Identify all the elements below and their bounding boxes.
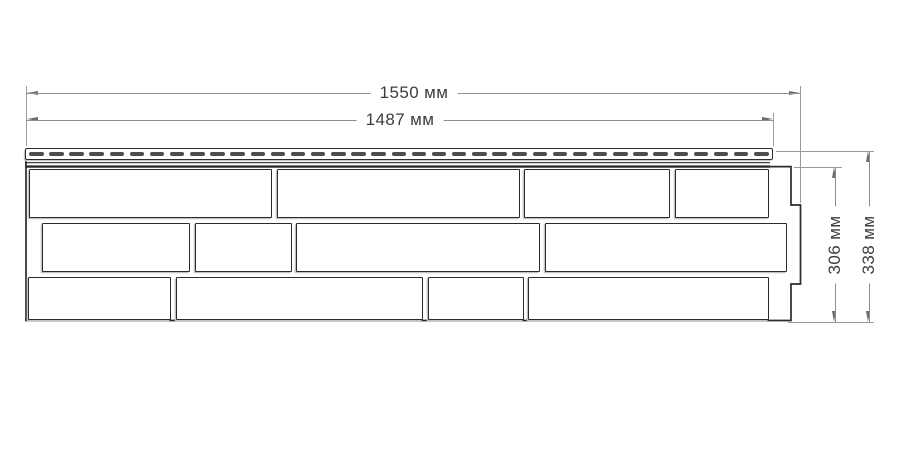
nail-slot [613, 152, 628, 156]
nail-slot [432, 152, 447, 156]
nail-slot [633, 152, 648, 156]
nail-slot [533, 152, 548, 156]
nail-slot [291, 152, 306, 156]
nail-slot [251, 152, 266, 156]
extension-line [776, 151, 874, 152]
nail-slot [230, 152, 245, 156]
nail-slot [89, 152, 104, 156]
nail-slot [49, 152, 64, 156]
brick [524, 169, 670, 218]
dim-label-hem-width: 1487 мм [357, 110, 444, 130]
nail-slot [351, 152, 366, 156]
brick [195, 223, 292, 272]
dim-label-overall-width: 1550 мм [371, 83, 458, 103]
brick [528, 277, 769, 320]
nail-slot [110, 152, 125, 156]
nail-slot [170, 152, 185, 156]
nail-slot [392, 152, 407, 156]
nail-slot [371, 152, 386, 156]
nail-slot [714, 152, 729, 156]
nail-slot [130, 152, 145, 156]
panel-dimension-diagram: 1550 мм 1487 мм 306 мм 338 мм [0, 0, 900, 450]
nail-slot [553, 152, 568, 156]
nail-slot [311, 152, 326, 156]
nail-slot [271, 152, 286, 156]
nail-slot [694, 152, 709, 156]
nail-slot [190, 152, 205, 156]
dim-label-overall-height: 338 мм [859, 207, 879, 284]
nail-slot [210, 152, 225, 156]
nail-slot [674, 152, 689, 156]
brick [428, 277, 524, 320]
nail-slot [573, 152, 588, 156]
dim-label-body-height: 306 мм [825, 207, 845, 284]
nail-slot [150, 152, 165, 156]
brick [28, 277, 171, 320]
nail-slot [754, 152, 769, 156]
extension-line [788, 322, 874, 323]
nail-hem-strip [25, 148, 773, 160]
nail-slot [29, 152, 44, 156]
nail-slot [492, 152, 507, 156]
nail-slot [452, 152, 467, 156]
nail-slot [512, 152, 527, 156]
nail-slot [593, 152, 608, 156]
nail-slot [412, 152, 427, 156]
extension-line [773, 113, 774, 146]
extension-line [800, 86, 801, 203]
nail-slot [734, 152, 749, 156]
nail-slot [653, 152, 668, 156]
nail-slot [472, 152, 487, 156]
brick [277, 169, 520, 218]
brick [545, 223, 787, 272]
nail-slot [69, 152, 84, 156]
brick [296, 223, 540, 272]
brick [29, 169, 272, 218]
extension-line [26, 86, 27, 146]
brick [176, 277, 423, 320]
brick [42, 223, 190, 272]
brick [675, 169, 769, 218]
nail-slot [331, 152, 346, 156]
